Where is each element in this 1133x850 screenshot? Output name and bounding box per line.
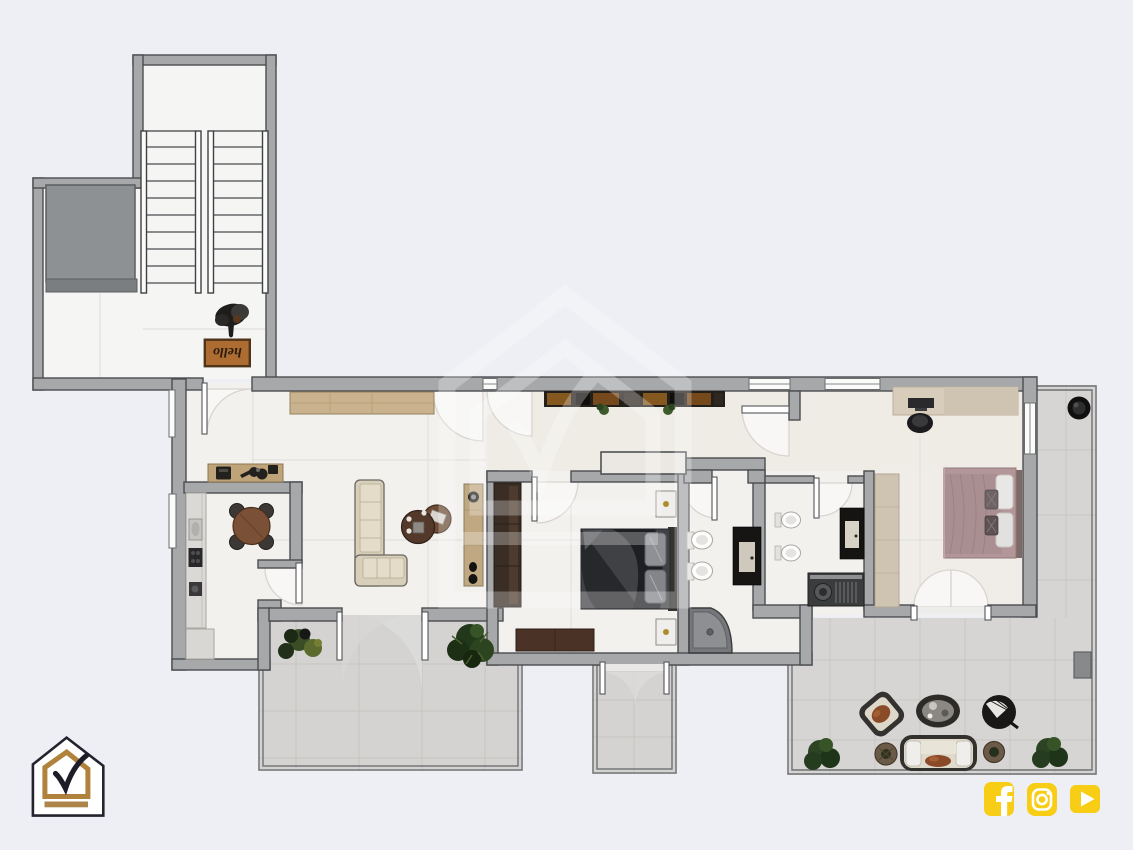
svg-text:hello: hello (213, 344, 242, 359)
